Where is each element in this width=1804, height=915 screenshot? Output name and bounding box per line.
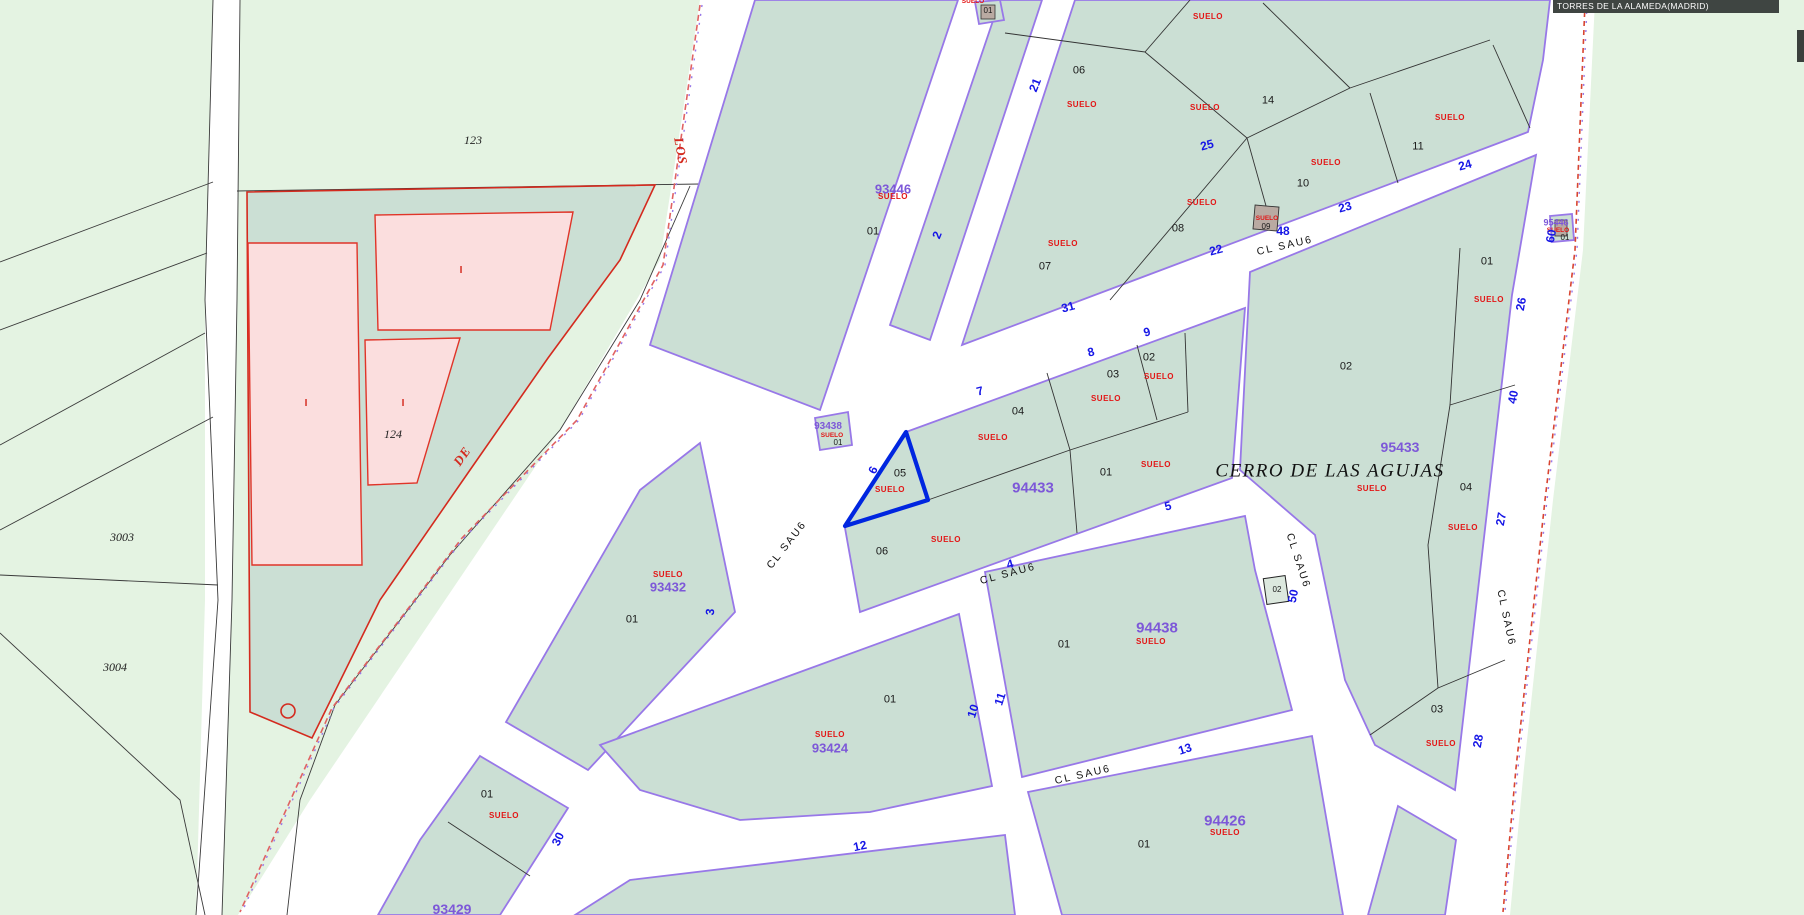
building-95446 [1555,220,1567,236]
building-footprint[interactable] [248,243,362,565]
cadastral-map[interactable] [0,0,1804,915]
building-top [981,5,995,19]
scrollbar-fragment[interactable] [1797,30,1804,62]
building-02[interactable] [1263,576,1288,605]
building-footprint[interactable] [375,212,573,330]
building-09[interactable] [1253,205,1279,231]
block-93438[interactable] [815,412,852,450]
cadastral-map-viewer[interactable]: 0106070814101109010203040501060201040301… [0,0,1804,915]
municipality-title: TORRES DE LA ALAMEDA(MADRID) [1553,0,1779,13]
